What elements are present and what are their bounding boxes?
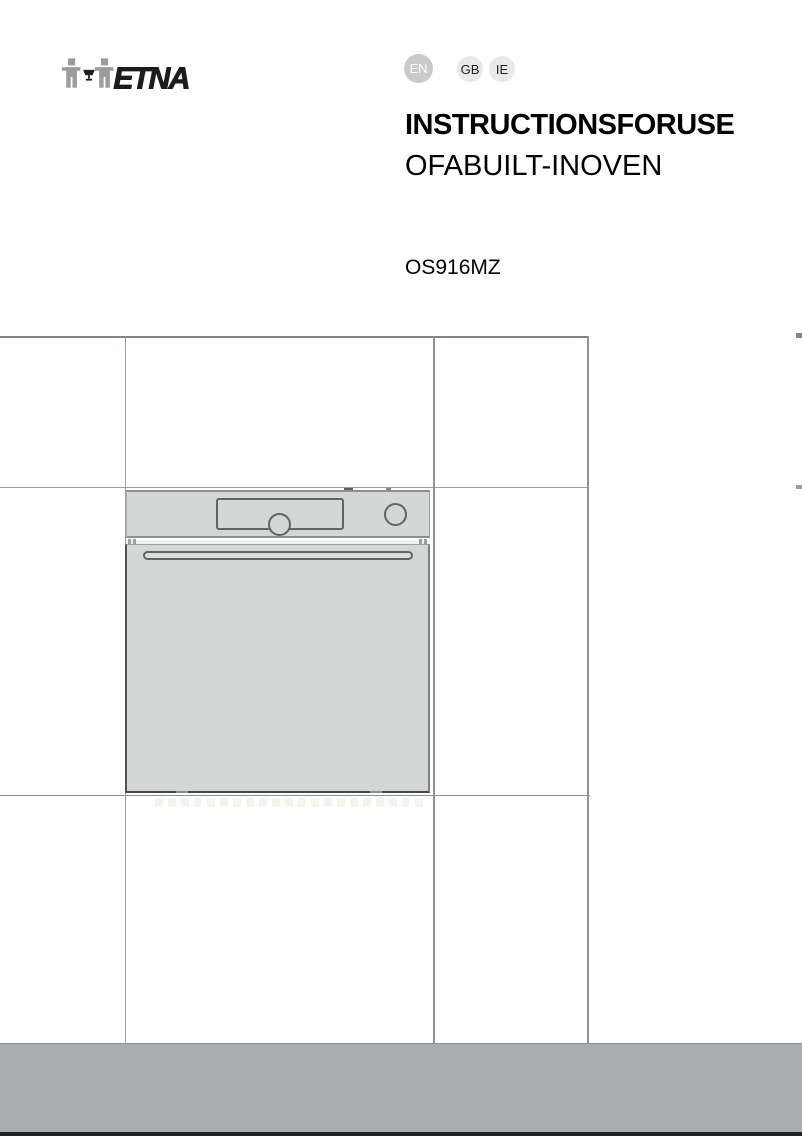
language-badge-gb-label: GB — [461, 63, 480, 76]
language-badge-ie-label: IE — [496, 63, 508, 76]
cabinet-grid-vline-midright — [433, 336, 435, 1043]
footer-dark-strip — [0, 1132, 802, 1136]
logo-pot-icon — [83, 70, 95, 81]
print-ghosting-artifact — [155, 798, 427, 807]
cabinet-grid-vline-right — [587, 336, 589, 1043]
cabinet-grid-hline-mid — [0, 487, 588, 488]
cabinet-grid-hline-top — [0, 336, 588, 338]
oven-door-handle — [143, 551, 413, 560]
door-bottom-mark — [176, 791, 188, 793]
document-title-line2: OFABUILT-INOVEN — [405, 152, 662, 181]
oven-door — [125, 544, 430, 793]
etna-logo-graphic: ETNA — [60, 54, 190, 100]
footer-gray-bar — [0, 1043, 802, 1132]
oven-center-knob — [268, 513, 291, 536]
language-badge-en-label: EN — [409, 62, 427, 75]
etna-logo: ETNA — [60, 54, 190, 100]
logo-wordmark: ETNA — [113, 63, 188, 96]
oven-right-knob — [384, 503, 407, 526]
language-badge-gb: GB — [457, 56, 483, 82]
panel-tick-mark — [386, 488, 391, 490]
page-edge-line-stub-top — [796, 333, 802, 338]
panel-tick-mark — [344, 488, 353, 490]
page-edge-line-stub-mid — [796, 485, 802, 489]
logo-person-right-icon — [95, 58, 114, 87]
cabinet-grid-hline-low — [0, 795, 590, 796]
logo-person-left-icon — [62, 58, 81, 87]
language-badge-ie: IE — [489, 56, 515, 82]
model-number: OS916MZ — [405, 257, 501, 278]
language-badge-en: EN — [404, 54, 433, 83]
door-bottom-mark — [370, 791, 382, 793]
document-title-line1: INSTRUCTIONSFORUSE — [405, 111, 734, 140]
manual-cover-page: ETNA EN GB IE INSTRUCTIONSFORUSE OFABUIL… — [0, 0, 802, 1136]
